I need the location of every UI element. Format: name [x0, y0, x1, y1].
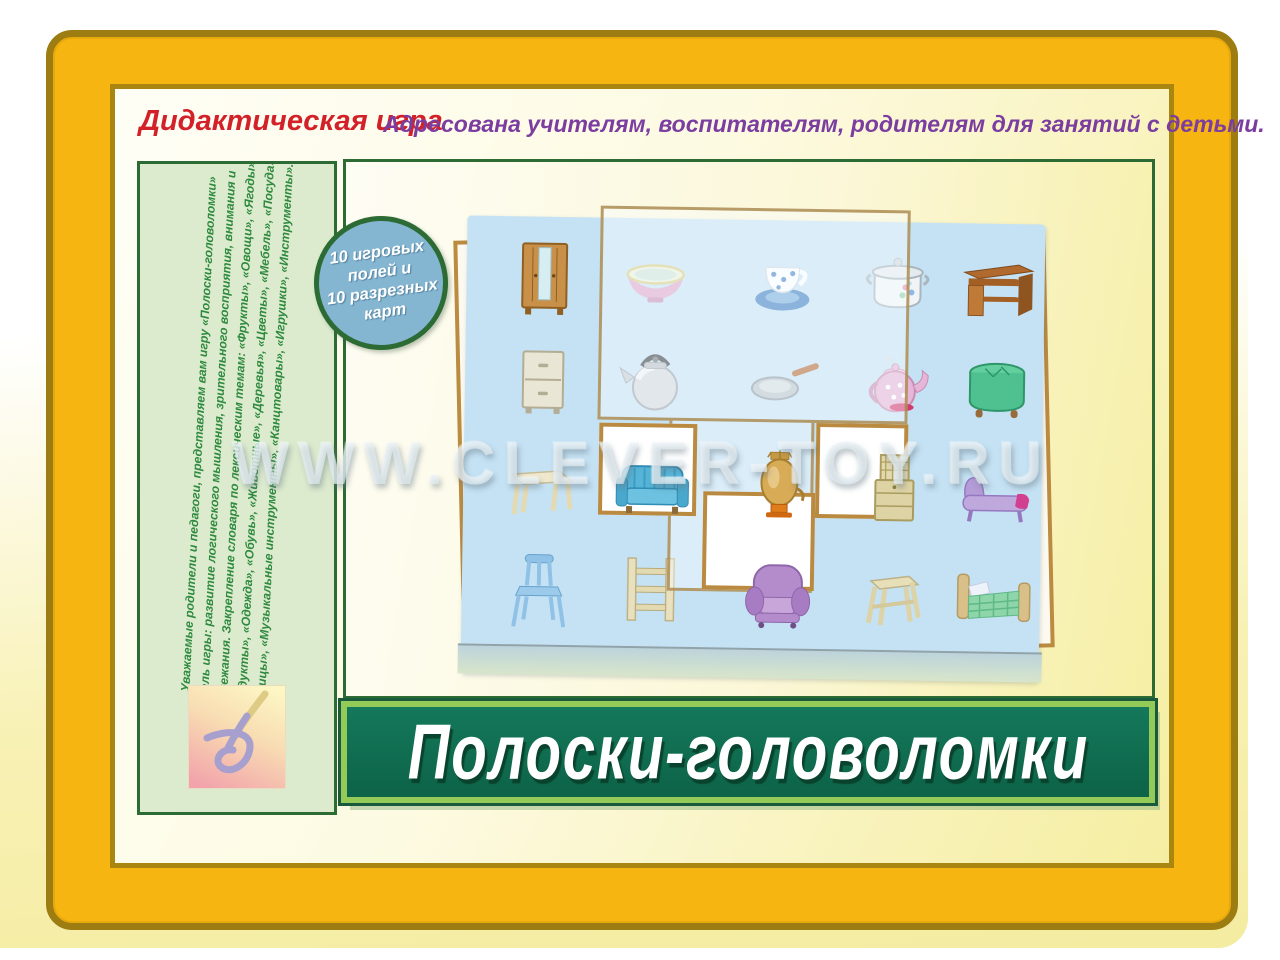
- game-board: [460, 215, 1045, 682]
- audience-label: Адресована учителям, воспитателям, родит…: [383, 111, 1265, 138]
- sofa-icon: [610, 446, 695, 531]
- wardrobe-icon: [502, 239, 587, 324]
- transparent-strip-overlay: [597, 206, 910, 425]
- desk-icon: [956, 246, 1041, 331]
- sidebar-panel: Уважаемые родители и педагоги, представл…: [137, 161, 337, 815]
- bed-icon: [951, 556, 1036, 641]
- gold-frame: Дидактическая игра Адресована учителям, …: [46, 30, 1238, 930]
- nightstand-icon: [500, 339, 585, 424]
- photo-area: [343, 159, 1155, 699]
- cabinet-icon: [852, 450, 937, 535]
- game-box-cover: Дидактическая игра Адресована учителям, …: [0, 0, 1280, 960]
- sidebar-description: Уважаемые родители и педагоги, представл…: [174, 161, 301, 748]
- stool-icon: [850, 555, 935, 640]
- samovar-icon: [737, 448, 822, 533]
- ottoman-icon: [954, 346, 1039, 431]
- game-title: Полоски-головоломки: [407, 707, 1088, 796]
- publisher-logo-glyph: [189, 686, 285, 788]
- cover-card: Дидактическая игра Адресована учителям, …: [110, 84, 1174, 868]
- table-icon: [499, 444, 584, 529]
- armchair-icon: [735, 553, 820, 638]
- chaise-icon: [953, 451, 1038, 536]
- publisher-logo: [189, 686, 285, 788]
- title-banner: Полоски-головоломки: [341, 701, 1155, 803]
- chair-icon: [497, 549, 582, 634]
- board-bottom-edge: [457, 643, 1041, 682]
